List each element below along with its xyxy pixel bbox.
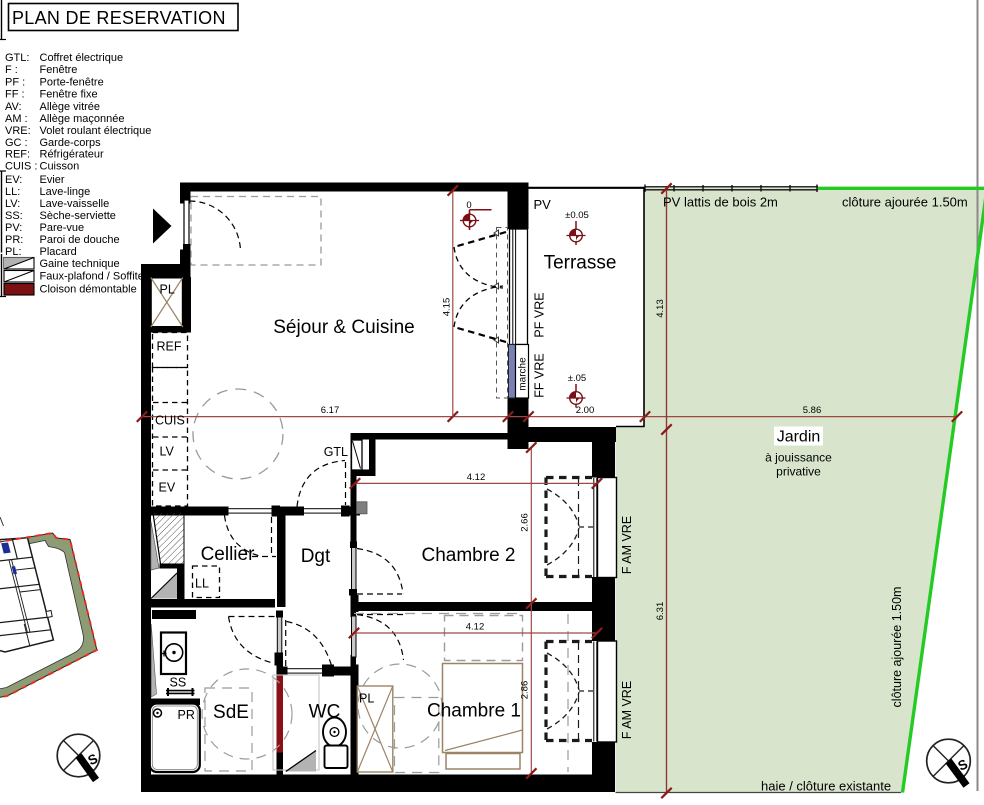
svg-text:Terrasse: Terrasse <box>544 253 617 274</box>
svg-text:CUIS: CUIS <box>155 414 185 428</box>
svg-text:Pare-vue: Pare-vue <box>40 222 85 234</box>
svg-text:2.86: 2.86 <box>520 681 531 700</box>
svg-text:REF:: REF: <box>5 149 30 161</box>
svg-text:Cellier: Cellier <box>201 544 256 565</box>
svg-text:Réfrigérateur: Réfrigérateur <box>40 149 105 161</box>
svg-text:Porte-fenêtre: Porte-fenêtre <box>40 76 104 88</box>
svg-text:Chambre 1: Chambre 1 <box>427 701 521 722</box>
svg-text:clôture ajourée 1.50m: clôture ajourée 1.50m <box>890 587 904 708</box>
svg-text:PLAN DE RESERVATION: PLAN DE RESERVATION <box>12 8 226 28</box>
svg-text:SS: SS <box>170 676 187 690</box>
svg-text:Fenêtre fixe: Fenêtre fixe <box>40 89 98 101</box>
svg-text:2.00: 2.00 <box>576 405 595 416</box>
svg-text:±.05: ±.05 <box>568 373 586 384</box>
svg-text:AM :: AM : <box>5 113 28 125</box>
svg-text:Faux-plafond / Soffite: Faux-plafond / Soffite <box>40 271 144 283</box>
svg-text:FF VRE: FF VRE <box>533 353 547 397</box>
svg-text:PR: PR <box>178 708 195 722</box>
svg-text:AV:: AV: <box>5 101 22 113</box>
svg-text:PL: PL <box>359 692 374 706</box>
svg-text:Lave-vaisselle: Lave-vaisselle <box>40 198 110 210</box>
svg-text:2.66: 2.66 <box>520 513 531 532</box>
svg-text:clôture ajourée 1.50m: clôture ajourée 1.50m <box>842 195 968 210</box>
svg-text:REF: REF <box>157 340 182 354</box>
svg-text:Gaine technique: Gaine technique <box>40 258 120 270</box>
svg-text:4.15: 4.15 <box>442 298 453 317</box>
svg-text:EV:: EV: <box>5 174 22 186</box>
svg-text:Dgt: Dgt <box>301 546 331 567</box>
svg-text:Séjour & Cuisine: Séjour & Cuisine <box>273 317 415 338</box>
svg-text:GTL:: GTL: <box>5 52 29 64</box>
svg-text:PF :: PF : <box>5 76 25 88</box>
svg-text:6.31: 6.31 <box>655 602 666 621</box>
svg-text:LV: LV <box>160 445 175 459</box>
svg-text:Allège maçonnée: Allège maçonnée <box>40 113 125 125</box>
svg-text:F :: F : <box>5 64 18 76</box>
svg-text:4.12: 4.12 <box>467 472 486 483</box>
svg-text:Garde-corps: Garde-corps <box>40 137 102 149</box>
svg-text:LV:: LV: <box>5 198 20 210</box>
svg-text:GC :: GC : <box>5 137 28 149</box>
svg-text:Chambre 2: Chambre 2 <box>422 545 516 566</box>
svg-text:0: 0 <box>466 200 471 211</box>
svg-text:Cuisson: Cuisson <box>40 161 80 173</box>
svg-text:Lave-linge: Lave-linge <box>40 186 91 198</box>
svg-text:Cloison démontable: Cloison démontable <box>40 284 137 296</box>
svg-text:GTL: GTL <box>324 445 348 459</box>
svg-text:EV: EV <box>159 481 176 495</box>
svg-text:5.86: 5.86 <box>803 405 822 416</box>
svg-text:PL: PL <box>160 283 175 297</box>
svg-text:Volet roulant électrique: Volet roulant électrique <box>40 125 152 137</box>
svg-text:PV:: PV: <box>5 222 22 234</box>
svg-text:Evier: Evier <box>40 174 65 186</box>
svg-text:LL:: LL: <box>5 186 20 198</box>
svg-text:FF :: FF : <box>5 89 25 101</box>
svg-text:LL: LL <box>195 577 209 591</box>
svg-text:Coffret électrique: Coffret électrique <box>40 52 124 64</box>
svg-text:Jardin: Jardin <box>777 429 821 446</box>
svg-text:6.17: 6.17 <box>321 405 340 416</box>
svg-text:marche: marche <box>518 357 529 391</box>
svg-text:4.12: 4.12 <box>466 622 485 633</box>
svg-text:WC: WC <box>309 702 341 723</box>
svg-text:4.13: 4.13 <box>655 299 666 318</box>
svg-text:CUIS :: CUIS : <box>5 161 37 173</box>
svg-text:SS:: SS: <box>5 210 23 222</box>
svg-text:SdE: SdE <box>213 702 249 723</box>
svg-text:Sèche-serviette: Sèche-serviette <box>40 210 116 222</box>
svg-text:±0.05: ±0.05 <box>565 210 589 221</box>
svg-text:PL:: PL: <box>5 246 22 258</box>
svg-text:Placard: Placard <box>40 246 77 258</box>
svg-text:PR:: PR: <box>5 234 23 246</box>
svg-text:PV: PV <box>534 197 552 212</box>
svg-text:Allège vitrée: Allège vitrée <box>40 101 101 113</box>
svg-text:PF VRE: PF VRE <box>533 292 547 337</box>
svg-text:haie / clôture existante: haie / clôture existante <box>761 779 891 794</box>
svg-text:Fenêtre: Fenêtre <box>40 64 78 76</box>
svg-text:F AM VRE: F AM VRE <box>620 516 634 574</box>
svg-text:VRE:: VRE: <box>5 125 31 137</box>
svg-text:privative: privative <box>776 465 821 479</box>
svg-text:F AM VRE: F AM VRE <box>620 681 634 739</box>
svg-text:PV lattis de bois 2m: PV lattis de bois 2m <box>663 195 778 210</box>
svg-text:à jouissance: à jouissance <box>765 451 832 465</box>
svg-text:Paroi de douche: Paroi de douche <box>40 234 120 246</box>
